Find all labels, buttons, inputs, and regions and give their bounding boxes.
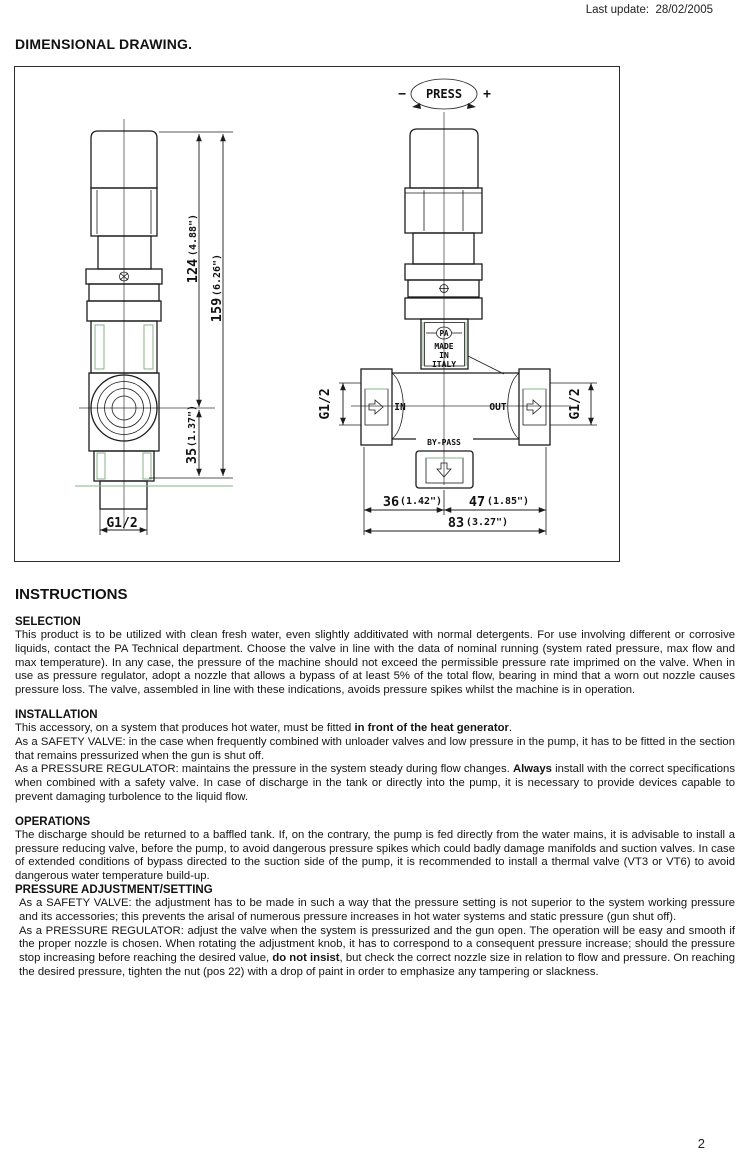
- paragraph: As a PRESSURE REGULATOR: maintains the p…: [15, 763, 735, 804]
- outlet-label: OUT: [489, 402, 506, 413]
- made-label: MADE: [434, 342, 453, 351]
- dim-35-mm: 35: [184, 448, 200, 464]
- press-minus-sign: −: [398, 87, 406, 102]
- pa-logo: PA: [439, 329, 449, 338]
- section-heading: INSTALLATION: [15, 709, 735, 721]
- text-segment-bold: Always: [513, 763, 552, 775]
- page-number: 2: [698, 1136, 705, 1151]
- text-segment: As a PRESSURE REGULATOR: maintains the p…: [15, 763, 513, 775]
- section-heading: SELECTION: [15, 616, 735, 628]
- paragraph: As a PRESSURE REGULATOR: adjust the valv…: [15, 925, 735, 980]
- text-segment: The discharge should be returned to a ba…: [15, 829, 735, 882]
- last-update-value: 28/02/2005: [655, 4, 713, 16]
- text-segment: This product is to be utilized with clea…: [15, 629, 735, 696]
- paragraph: As a SAFETY VALVE: in the case when freq…: [15, 736, 735, 764]
- dim-35-inches: (1.37"): [187, 405, 198, 447]
- press-plus-sign: +: [483, 87, 491, 102]
- last-update-label: Last update:: [586, 4, 649, 16]
- dim-124-mm: 124: [185, 259, 201, 283]
- paragraph: This accessory, on a system that produce…: [15, 722, 735, 736]
- valve-side-view: PRESS − +: [318, 79, 597, 535]
- in-country-label: IN: [439, 351, 449, 360]
- text-segment: This accessory, on a system that produce…: [15, 722, 354, 734]
- dim-159-inches: (6.26"): [212, 254, 223, 296]
- section-installation: INSTALLATION This accessory, on a system…: [15, 709, 735, 805]
- dim-159-mm: 159: [209, 298, 225, 322]
- dim-83-mm: 83: [448, 515, 464, 531]
- datasheet-page: Last update: 28/02/2005 DIMENSIONAL DRAW…: [0, 0, 750, 1173]
- g12-outlet-label: G1/2: [568, 388, 583, 419]
- valve-drawing: G1/2 (4.88") 124 (6.26") 159 (1.37") 35: [15, 67, 619, 561]
- section-heading: PRESSURE ADJUSTMENT/SETTING: [15, 884, 735, 896]
- text-segment: .: [509, 722, 512, 734]
- dim-36-mm: 36: [383, 494, 399, 510]
- section-operations: OPERATIONS The discharge should be retur…: [15, 816, 735, 884]
- g12-inlet-label: G1/2: [318, 388, 333, 419]
- dimensional-drawing-title: DIMENSIONAL DRAWING.: [15, 36, 192, 52]
- g12-bottom-label: G1/2: [106, 516, 137, 531]
- paragraph: As a SAFETY VALVE: the adjustment has to…: [15, 897, 735, 925]
- instructions-title: INSTRUCTIONS: [15, 586, 735, 603]
- press-label: PRESS: [426, 87, 462, 101]
- section-heading: OPERATIONS: [15, 816, 735, 828]
- dim-36-inches: (1.42"): [400, 496, 442, 507]
- section-pressure-adjustment: PRESSURE ADJUSTMENT/SETTING As a SAFETY …: [15, 884, 735, 980]
- dim-47-inches: (1.85"): [487, 496, 529, 507]
- text-segment-bold: do not insist: [272, 952, 339, 964]
- text-segment: As a SAFETY VALVE: in the case when freq…: [15, 736, 735, 762]
- bypass-label: BY-PASS: [427, 438, 461, 447]
- last-update: Last update: 28/02/2005: [586, 4, 713, 16]
- dim-83-inches: (3.27"): [466, 517, 508, 528]
- instructions-block: INSTRUCTIONS SELECTION This product is t…: [15, 586, 735, 980]
- section-selection: SELECTION This product is to be utilized…: [15, 616, 735, 698]
- italy-label: ITALY: [432, 360, 456, 369]
- inlet-label: IN: [394, 402, 406, 413]
- text-segment-bold: in front of the heat generator: [354, 722, 508, 734]
- dim-124-inches: (4.88"): [188, 214, 199, 256]
- dim-47-mm: 47: [469, 494, 485, 510]
- text-segment: As a SAFETY VALVE: the adjustment has to…: [19, 897, 735, 923]
- valve-front-view: G1/2 (4.88") 124 (6.26") 159 (1.37") 35: [75, 119, 233, 535]
- paragraph: This product is to be utilized with clea…: [15, 629, 735, 698]
- paragraph: The discharge should be returned to a ba…: [15, 829, 735, 884]
- dimensional-drawing-box: G1/2 (4.88") 124 (6.26") 159 (1.37") 35: [14, 66, 620, 562]
